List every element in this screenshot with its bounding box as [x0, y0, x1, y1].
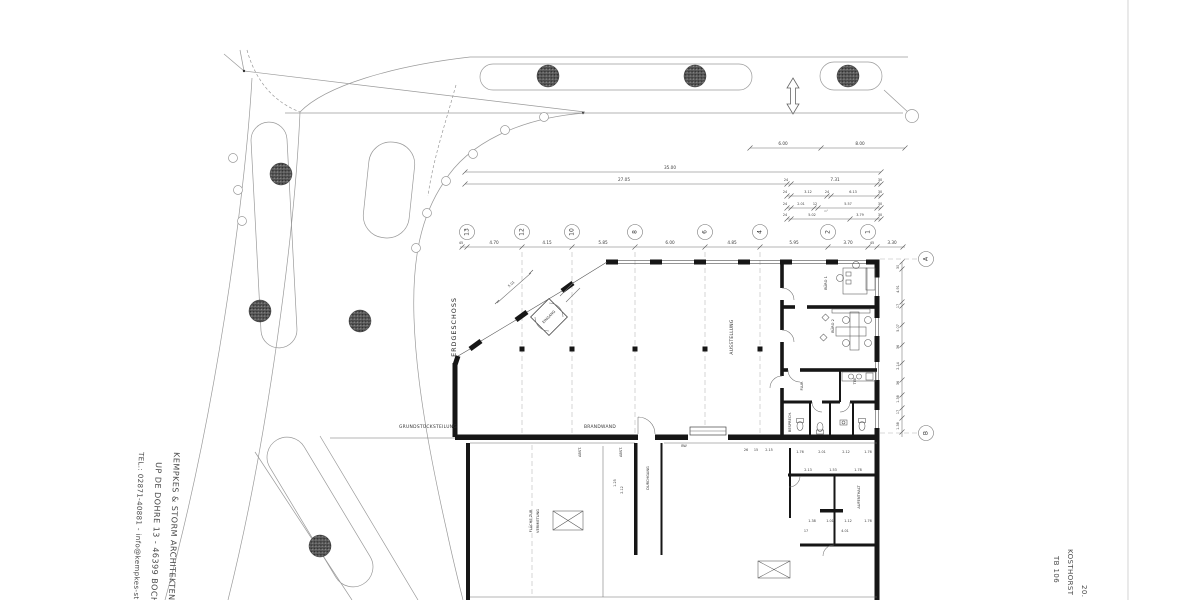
dim-label: 4.91 [896, 285, 900, 293]
grid-column-label: 6 [702, 230, 709, 234]
dim-label: 5.02 [808, 213, 816, 217]
survey-point [234, 186, 243, 195]
dim-label: 15 [754, 448, 758, 452]
tree-icon [270, 163, 292, 185]
dim-note: m² [824, 209, 828, 213]
dim-label: 5.01 [507, 280, 515, 288]
tea-kitchen-fixtures [842, 372, 876, 381]
dim-label: 3.70 [843, 240, 853, 245]
office1-furniture [837, 262, 876, 295]
x-box [553, 511, 583, 530]
dim-label: 45 [459, 241, 463, 245]
project-name: KOSTHORST [1066, 549, 1074, 596]
dim-label: 1.38 [896, 395, 900, 403]
grid-column-label: 13 [464, 228, 471, 236]
two-way-arrow-icon [787, 78, 799, 114]
survey-point [501, 126, 510, 135]
dim-label: 17 [896, 304, 900, 308]
site-layer [165, 0, 1128, 600]
dim-label: 3.79 [856, 213, 864, 217]
dim-label: 1.53 [829, 468, 837, 472]
stepped-facade [455, 262, 607, 365]
dim-label: 3.30 [887, 240, 897, 245]
grid-column-label: 12 [519, 228, 526, 236]
x-box [758, 561, 790, 578]
dim-label: 2.14 [896, 362, 900, 370]
grid-row-label: B [923, 431, 930, 435]
plot-boundary-curve [414, 113, 585, 600]
dim-label: 17 [804, 529, 808, 533]
meeting-label: BESPRECH. [788, 412, 792, 432]
dim-label: 1.76 [796, 450, 804, 454]
dim-label: 2.13 [804, 468, 812, 472]
tree-icon [249, 300, 271, 322]
tree-icon [309, 535, 331, 557]
survey-point [423, 209, 432, 218]
tree-icon [537, 65, 559, 87]
dim-label: 5.85 [598, 240, 608, 245]
dim-label: 3.12 [804, 190, 812, 194]
storage-label: ABST. [619, 447, 623, 457]
sheet-id: TB 106 [1052, 555, 1060, 583]
dim-label: 30 [878, 178, 882, 182]
sheet-number: 20. [1080, 585, 1088, 597]
driveway-edge [255, 436, 418, 600]
dim-label: 8.00 [855, 141, 865, 146]
dim-label: 6.13 [849, 190, 857, 194]
door-swing [638, 417, 655, 434]
lounge-label: AUFENTHALT [857, 485, 861, 509]
dim-label: 45 [870, 241, 874, 245]
dim-label: 1.78 [854, 468, 862, 472]
office-partitions [780, 262, 877, 437]
dim-label: 1.76 [864, 519, 872, 523]
passage-label: DURCHGANG [646, 466, 650, 490]
firewall-label: BRANDWAND [584, 424, 616, 430]
survey-point [540, 113, 549, 122]
floor-label: ERDGESCHOSS [450, 297, 458, 357]
dim-label: 1.38 [896, 422, 900, 430]
dim-label: 17 [896, 410, 900, 414]
office2-furniture [820, 309, 872, 350]
dim-label: 30 [878, 213, 882, 217]
survey-point [229, 154, 238, 163]
dim-label: 24 [825, 190, 829, 194]
dim-label: 6.00 [778, 141, 788, 146]
grid-row-label: A [923, 256, 930, 261]
grid-layer: 13 12 10 8 6 4 2 1 45 4.70 4.15 5.85 6.0… [459, 225, 934, 441]
dim-label: 1.01 [826, 519, 834, 523]
rental-label-line2: VERMIETUNG [536, 509, 540, 533]
tea-label: TEE [853, 377, 857, 385]
site-floor-plan-drawing: 6.00 8.00 35.00 27.05 24 7.31 30 24 3.12… [0, 0, 1200, 600]
dim-label: 1.76 [864, 450, 872, 454]
grid-column-label: 1 [865, 230, 872, 234]
dim-label: 26 [744, 448, 748, 452]
survey-point [906, 110, 919, 123]
dim-label: 24 [783, 213, 787, 217]
survey-point [412, 244, 421, 253]
dim-label: 35.00 [664, 165, 676, 170]
firewall [455, 435, 877, 441]
architect-contact: TEL.: 02871-40881 - info@kempkes-sto [132, 451, 145, 600]
dim-label: 12 [813, 202, 817, 206]
dim-label: 2.01 [818, 450, 826, 454]
dim-label: 30 [896, 265, 900, 269]
dim-label: 7.31 [830, 177, 840, 182]
dim-label: 4.01 [841, 529, 849, 533]
architect-address: UP DE DOHRE 13 - 46399 BOCHOLT [149, 462, 163, 600]
survey-dot [243, 70, 245, 72]
road-edge [300, 57, 470, 112]
hall-label: AUSSTELLUNG [729, 319, 735, 354]
dim-label: 30 [878, 202, 882, 206]
grid-column-label: 8 [632, 230, 639, 234]
dim-label: 2.12 [620, 486, 624, 494]
traffic-island [480, 64, 752, 90]
tree-icon [837, 65, 859, 87]
dim-label: 4.15 [542, 240, 552, 245]
titleblock-layer: KEMPKES & STORM ARCHITEKTEN UP DE DOHRE … [132, 451, 1088, 600]
dim-label: 24 [784, 178, 788, 182]
rental-label-line1: FLÄCHE ZUR [528, 509, 533, 532]
tree-icon [349, 310, 371, 332]
dim-label: 2.12 [842, 450, 850, 454]
site-division-label: GRUNDSTÜCKSTEILUNG [399, 423, 457, 430]
dim-label: 24 [783, 202, 787, 206]
dim-label: 36 [896, 381, 900, 385]
dim-label: 2.15 [765, 448, 773, 452]
green-strip [260, 430, 381, 595]
survey-point [469, 150, 478, 159]
dim-label: 1.25 [613, 479, 617, 487]
survey-point [442, 177, 451, 186]
survey-point [238, 217, 247, 226]
grid-column-label: 2 [825, 230, 832, 234]
top-dimensions: 6.00 8.00 35.00 27.05 24 7.31 30 24 3.12… [463, 141, 908, 222]
storage-label: ABST. [578, 447, 582, 457]
boundary-line [884, 90, 909, 113]
office2-label: BÜRO 2 [830, 319, 835, 333]
east-wall [875, 260, 880, 600]
dim-label: 4.70 [489, 240, 499, 245]
dim-label: 2.01 [797, 202, 805, 206]
dim-label: 27.05 [618, 177, 630, 182]
dim-label: 30 [878, 190, 882, 194]
green-strip [361, 140, 417, 240]
dim-label: 5.95 [789, 240, 799, 245]
dim-label: 24 [783, 190, 787, 194]
dim-label: 6.00 [665, 240, 675, 245]
dim-label: 4.85 [727, 240, 737, 245]
office1-label: BÜRO 1 [823, 276, 828, 290]
dim-label: 36 [896, 345, 900, 349]
tree-icon [684, 65, 706, 87]
columns [520, 347, 763, 352]
dim-label: 5.07 [896, 324, 900, 332]
architect-name: KEMPKES & STORM ARCHITEKTEN [167, 452, 181, 600]
dashed-curb [247, 50, 300, 112]
grid-column-label: 10 [569, 228, 576, 236]
dim-label: 1.12 [844, 519, 852, 523]
bw-label: BW [681, 444, 687, 448]
dim-label: 1.38 [808, 519, 816, 523]
entrance-vestibule: 5.01 [495, 270, 580, 335]
grid-column-label: 4 [757, 230, 764, 234]
dim-label: 5.57 [844, 202, 852, 206]
boundary-line [244, 71, 585, 112]
corridor-label: FLUR [800, 381, 804, 391]
boundary-spike [224, 50, 244, 71]
